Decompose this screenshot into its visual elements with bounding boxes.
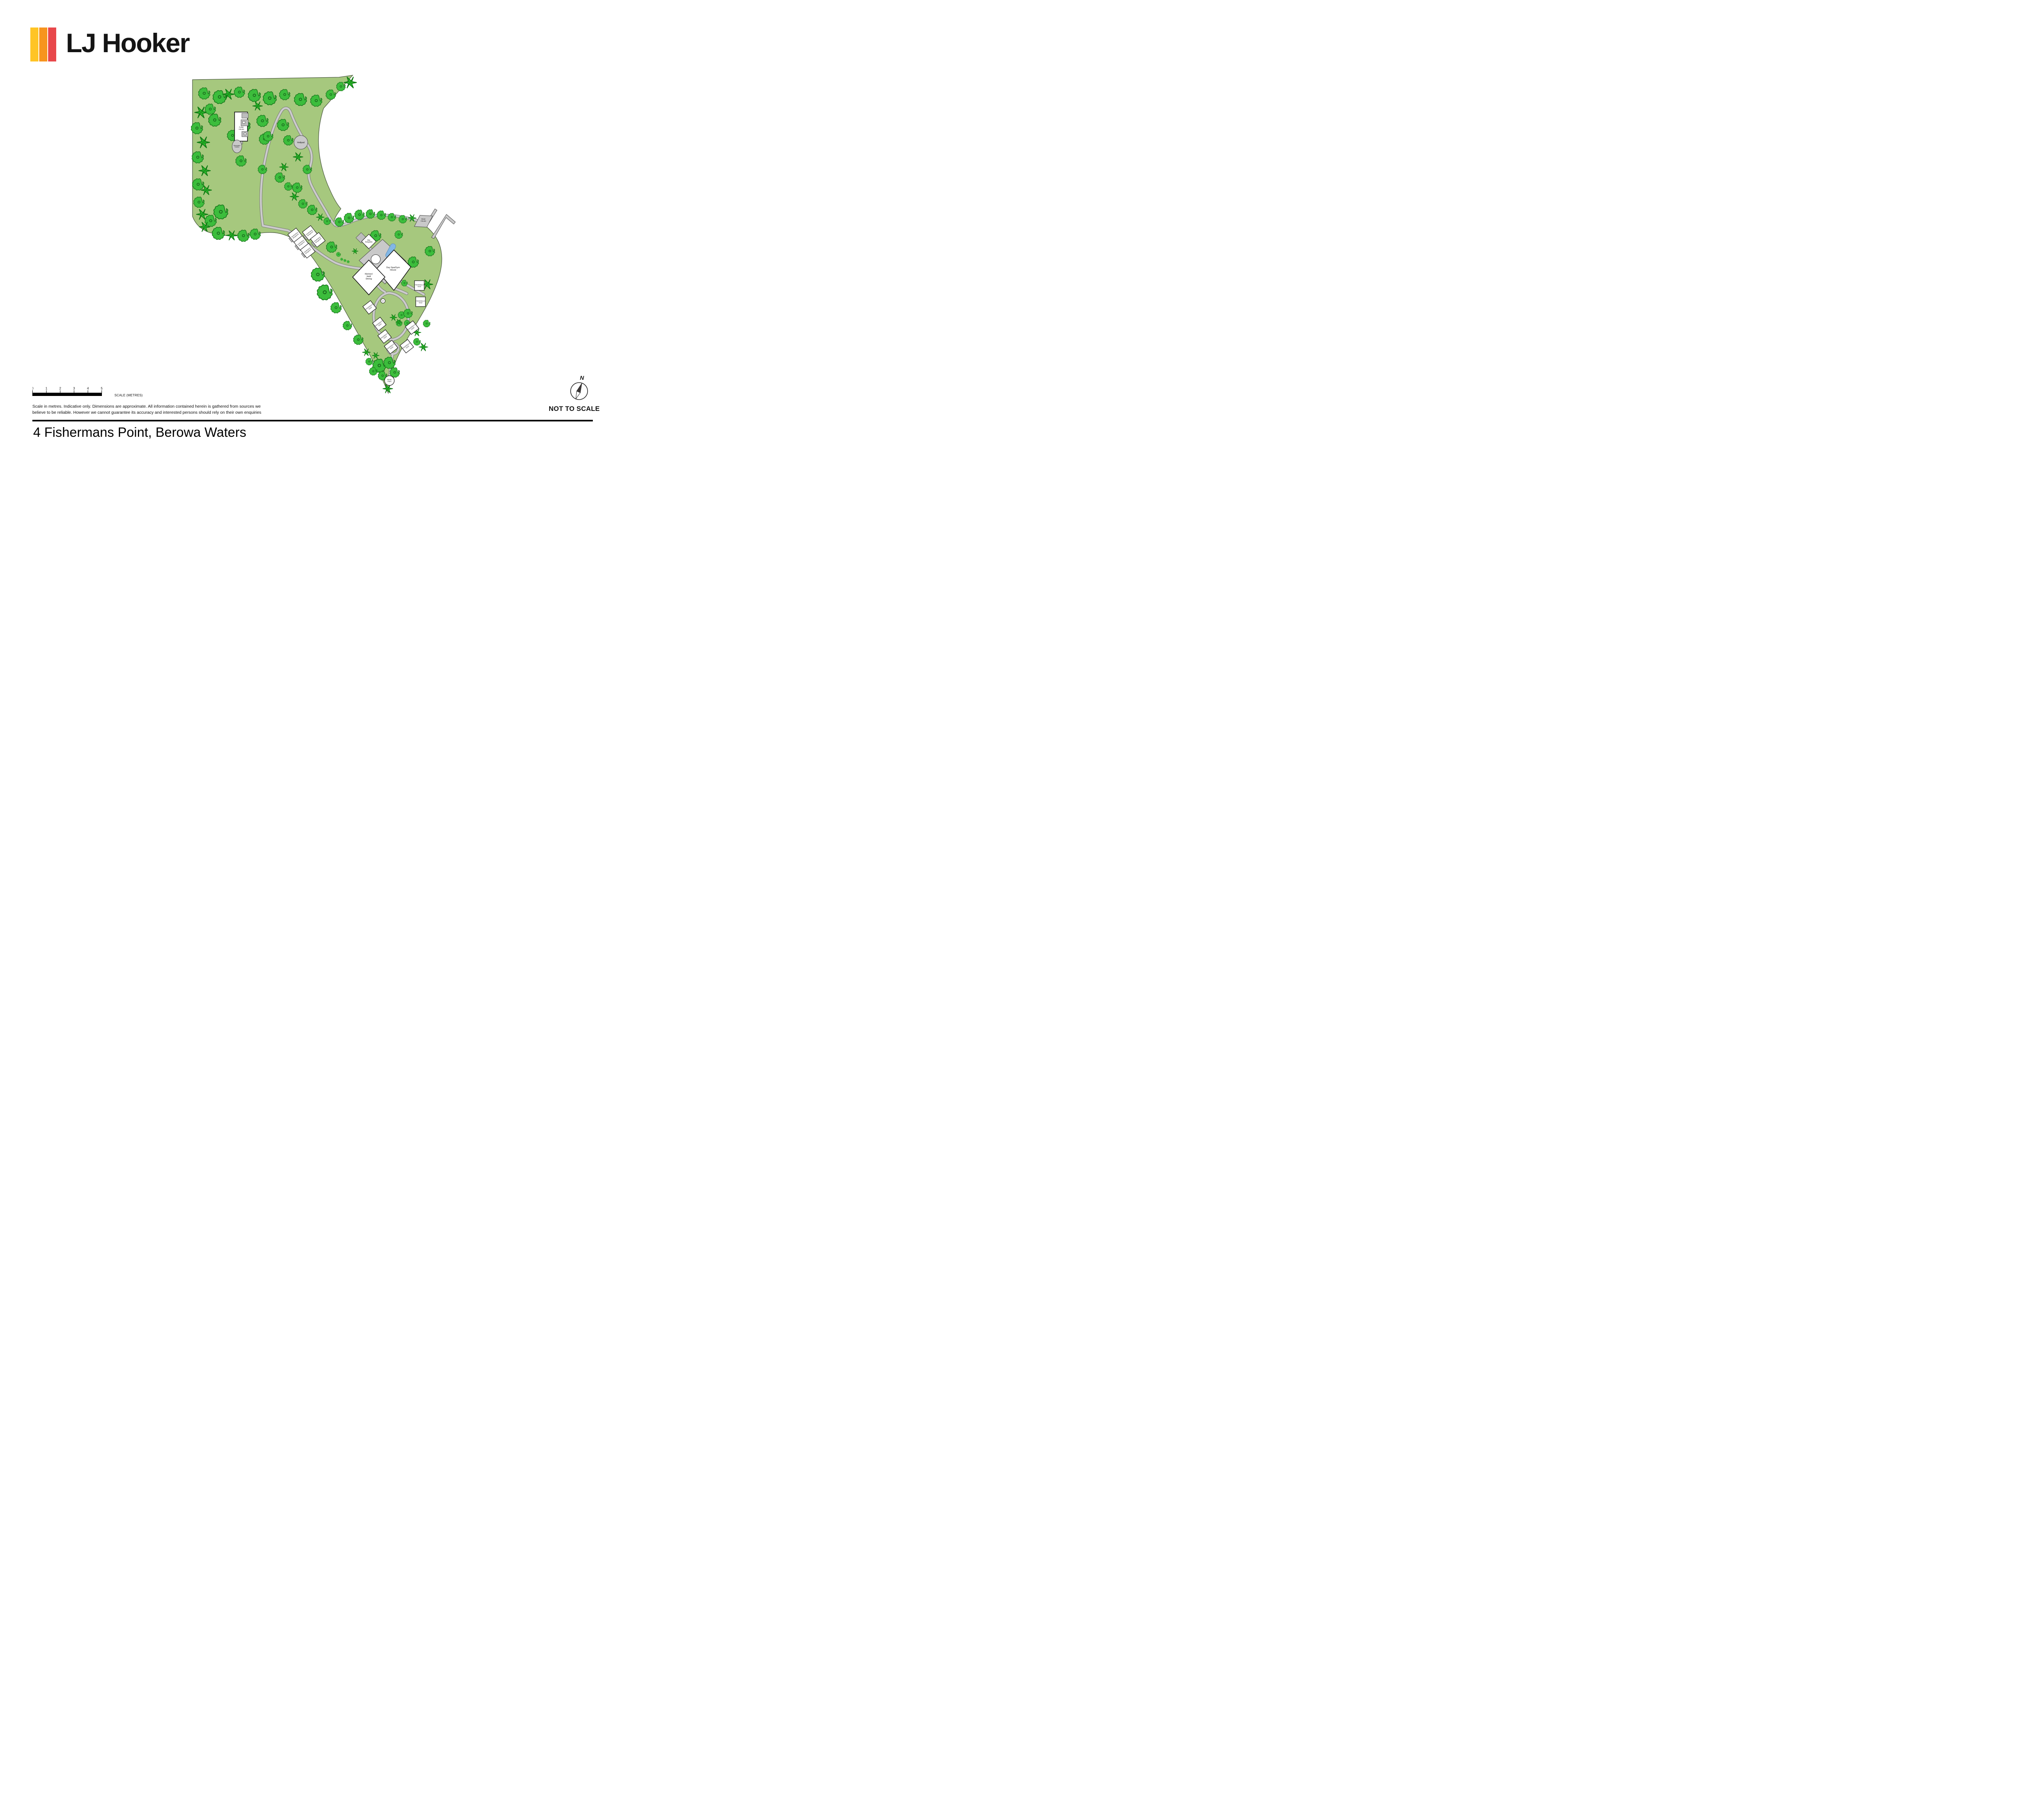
scale-bar-rect: [32, 393, 102, 396]
fuller-house-label: FullerHouse: [239, 126, 244, 130]
fuller-house: FullerHouse: [235, 112, 248, 144]
disclaimer-line-2: believe to be reliable. However we canno…: [32, 410, 307, 416]
tree-icon: [335, 218, 344, 226]
site-plan-map: BoatHouse FullerHouse MarramarraPavillio…: [0, 0, 625, 442]
scale-tick-label: 0: [32, 387, 34, 390]
scale-units-label: SCALE (METRES): [114, 394, 143, 397]
compass-needle-light: [576, 391, 580, 399]
picnic-point-label: PicnicPoint: [387, 379, 392, 383]
peninsula-tent: PENINSULATENT: [415, 281, 424, 290]
scale-tick-labels: 012345: [32, 387, 103, 393]
disclaimer-text: Scale in metres. Indicative only. Dimens…: [32, 404, 307, 416]
compass-north-label: N: [580, 375, 584, 381]
scale-tick-label: 3: [73, 387, 75, 390]
compass-rose-icon: N: [565, 373, 594, 404]
tree-icon: [344, 213, 354, 223]
tree-icon: [413, 338, 421, 345]
scale-tick-label: 4: [87, 387, 89, 390]
palm-tree-icon: [419, 343, 428, 351]
scale-tick-label: 1: [45, 387, 47, 390]
tree-icon: [366, 210, 375, 218]
tree-icon: [343, 321, 352, 330]
tree-icon: [317, 285, 332, 300]
tree-icon: [355, 210, 364, 220]
tree-icon: [423, 320, 430, 327]
deck-circle: [371, 255, 381, 264]
scale-tick-label: 5: [101, 387, 103, 390]
helipad-label: Helipad: [297, 142, 305, 144]
property-address-title: 4 Fishermans Point, Berowa Waters: [33, 425, 246, 440]
disclaimer-line-1: Scale in metres. Indicative only. Dimens…: [32, 404, 307, 410]
peninsula-tent: PENINSULATENT: [416, 297, 425, 307]
water-tank-label: WT: [382, 301, 384, 302]
tree-icon: [366, 358, 373, 365]
not-to-scale-label: NOT TO SCALE: [542, 405, 607, 413]
footer-divider: [32, 420, 593, 421]
tree-icon: [331, 303, 341, 313]
tree-icon: [377, 211, 386, 220]
jetty-l-shaped: [431, 214, 455, 239]
scale-tick-label: 2: [59, 387, 61, 390]
tree-icon: [388, 213, 396, 221]
